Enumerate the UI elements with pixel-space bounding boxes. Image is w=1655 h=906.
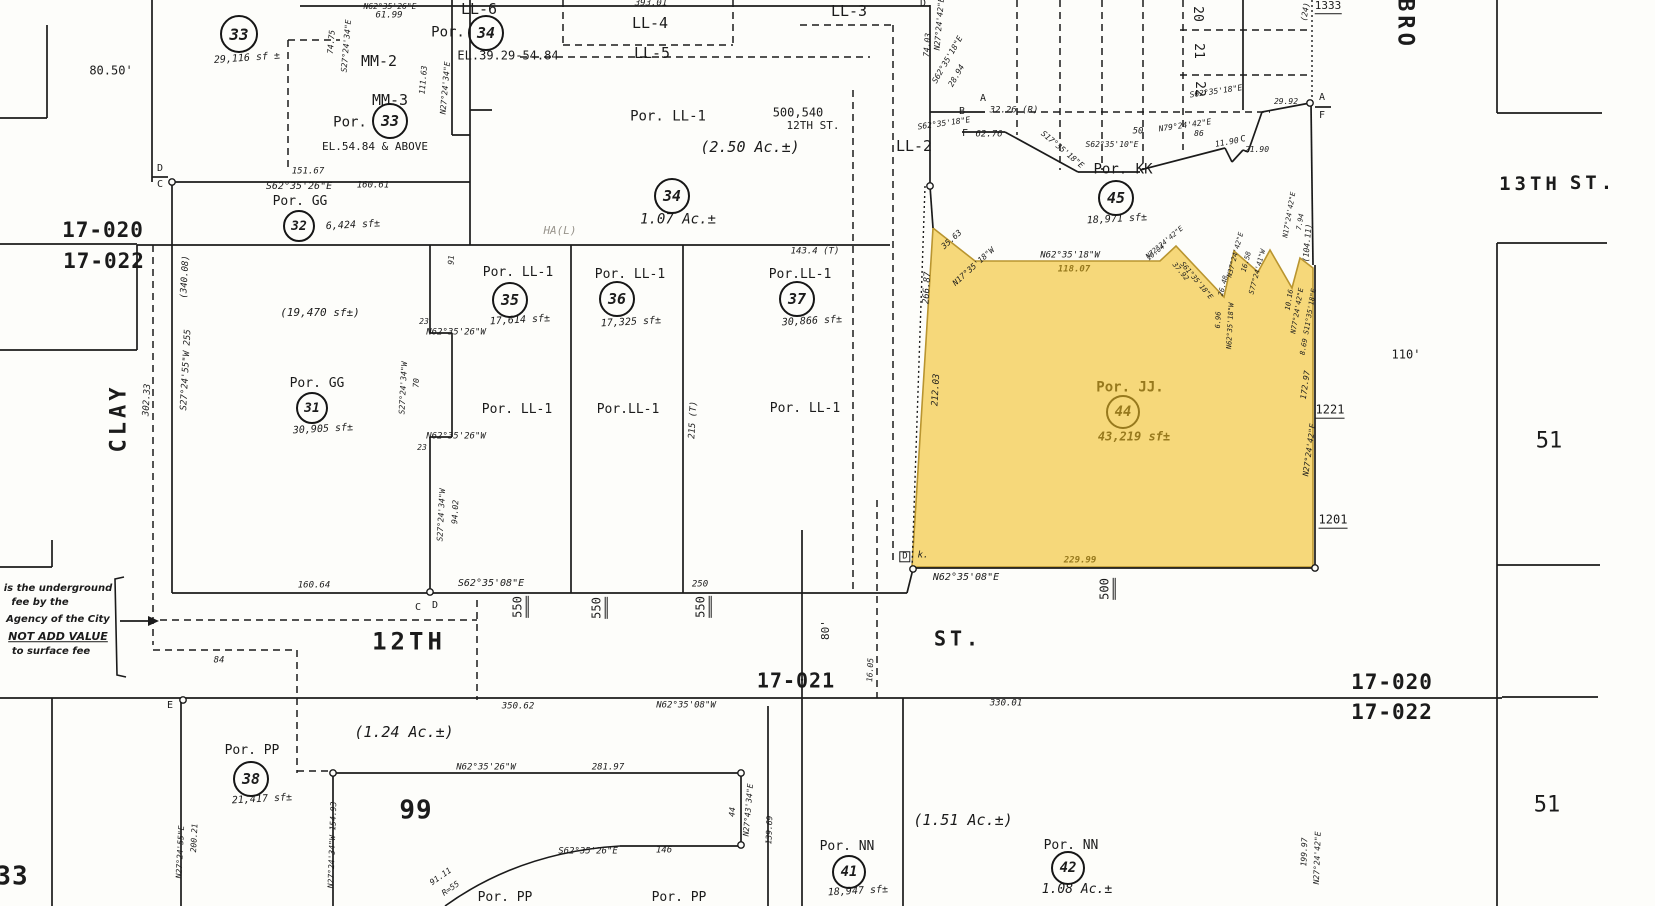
page-ref-17-020-right: 17-020	[1351, 671, 1433, 693]
map-label-1-24-ac: (1.24 Ac.±)	[354, 725, 453, 741]
map-label-50: 50	[1133, 127, 1144, 136]
parcel-number-circle-36[interactable]: 36	[599, 281, 635, 317]
zone-label-ll3: LL-3	[831, 4, 867, 20]
parcel-45-name: Por. KK	[1093, 163, 1152, 178]
map-label-s62-35-26-e: S62°35'26"E	[558, 847, 618, 856]
parcel-44-name: Por. JJ.	[1096, 381, 1163, 396]
map-label-200-21: 200.21	[190, 823, 200, 852]
address-1201: 1201	[1319, 514, 1348, 529]
survey-corner-point	[927, 183, 933, 189]
survey-corner-point	[738, 770, 744, 776]
map-label-k: k.	[918, 551, 929, 560]
parcel-number-circle-41[interactable]: 41	[832, 855, 866, 889]
page-ref-17-022-right: 17-022	[1351, 701, 1433, 723]
zone-label-mm2: MM-2	[361, 54, 397, 70]
parcel-38-name: Por. PP	[225, 744, 280, 758]
map-label-22: 22	[1192, 81, 1206, 97]
parcel-42-area: 1.08 Ac.±	[1042, 883, 1112, 897]
page-ref-17-021: 17-021	[757, 671, 835, 692]
map-label-91: 91	[448, 255, 457, 265]
parcel-number-circle-42[interactable]: 42	[1051, 851, 1085, 885]
map-label-215-t: 215 (T)	[688, 401, 699, 439]
zone-label-ll4: LL-4	[632, 16, 668, 32]
map-label-por: Por.	[431, 26, 465, 41]
map-label-c: C	[157, 180, 163, 191]
map-label-1-51-ac: (1.51 Ac.±)	[913, 813, 1012, 829]
map-label-f: F	[962, 129, 968, 140]
map-label-s62-35-26-e: S62°35'26"E	[266, 182, 332, 193]
address-550-c: 550	[695, 596, 712, 618]
parcel-34-name: Por. LL-1	[630, 110, 706, 125]
map-label-29-92: 29.92	[1274, 98, 1298, 106]
parcel-number-circle-31[interactable]: 31	[296, 392, 328, 424]
survey-corner-point	[330, 770, 336, 776]
note-line-3: Agency of the City	[6, 615, 110, 626]
map-label-23: 23	[419, 318, 429, 326]
address-1333: 1333	[1315, 0, 1342, 14]
map-label-350-62: 350.62	[502, 702, 535, 711]
survey-corner-point	[1312, 565, 1318, 571]
map-label-20: 20	[1190, 6, 1204, 22]
map-label-94-02: 94.02	[451, 500, 461, 524]
parcel-32-name: Por. GG	[273, 195, 328, 209]
map-label-143-4-t: 143.4 (T)	[791, 247, 840, 256]
map-label-6-96: 6.96	[1215, 311, 1223, 328]
parcel-number-circle-38[interactable]: 38	[233, 761, 269, 797]
map-label-110: 110'	[1392, 349, 1421, 362]
page-ref-17-020-left: 17-020	[62, 219, 144, 241]
map-label-16-05: 16.05	[866, 658, 876, 682]
boundary-line	[1232, 150, 1243, 162]
page-ref-17-022-left: 17-022	[63, 250, 145, 272]
map-label-21-90: 21.90	[1245, 146, 1269, 154]
map-label-e: E	[167, 701, 173, 712]
map-label-st: ST.	[1570, 174, 1616, 194]
map-label-139-69: 139.69	[765, 815, 774, 844]
street-label-12th: 12TH	[372, 629, 446, 654]
map-label-n62-35-08-e: N62°35'08"E	[933, 573, 999, 584]
block-51-upper: 51	[1536, 429, 1563, 452]
map-label-12th-st: 12TH ST.	[787, 120, 840, 132]
note-line-2: fee by the	[11, 598, 68, 609]
parcel-number-circle-33[interactable]: 33	[220, 15, 258, 53]
map-label-por: Por.	[333, 116, 367, 131]
map-label-s62-35-10-e: S62°35'10"E	[1086, 141, 1139, 149]
map-label-n62-35-26-w: N62°35'26"W	[426, 328, 486, 337]
map-label-por-ll-1: Por.LL-1	[597, 403, 660, 417]
map-label-n62-35-08-w: N62°35'08"W	[656, 701, 716, 710]
address-550-b: 550	[591, 597, 608, 619]
parcel-34-area: 1.07 Ac.±	[640, 213, 716, 228]
block-99: 99	[399, 797, 432, 824]
map-label-a: A	[980, 94, 986, 105]
street-label-clay: CLAY	[107, 384, 130, 453]
map-label-19-470-sf: (19,470 sf±)	[280, 307, 359, 319]
parcel-35-name: Por. LL-1	[483, 266, 553, 280]
survey-corner-point	[180, 697, 186, 703]
parcel-41-name: Por. NN	[820, 840, 875, 854]
parcel-number-circle-35[interactable]: 35	[492, 282, 528, 318]
map-label-f: F	[1319, 111, 1325, 122]
map-label-80-50: 80.50'	[89, 65, 132, 78]
parcel-37-name: Por.LL-1	[769, 268, 832, 282]
map-label-151-67: 151.67	[292, 167, 325, 176]
map-label-a: A	[1319, 93, 1325, 104]
note-line-5: to surface fee	[12, 647, 90, 658]
map-label-302-33: 302.33	[142, 384, 153, 417]
note-bracket	[115, 577, 126, 677]
map-label-118-07: 118.07	[1058, 265, 1091, 274]
map-label-d: D	[432, 601, 438, 612]
parcel-44-area: 43,219 sf±	[1098, 431, 1170, 444]
boundary-line	[930, 186, 933, 228]
map-label-c: C	[415, 603, 421, 614]
map-label-44: 44	[728, 807, 737, 817]
parcel-number-circle-45[interactable]: 45	[1098, 180, 1134, 216]
street-label-broadway: BRO	[1393, 0, 1416, 50]
map-label-c: C	[1240, 135, 1245, 144]
boundary-line	[1225, 148, 1232, 162]
parcel-number-circle-37[interactable]: 37	[779, 281, 815, 317]
map-label-por-pp: Por. PP	[478, 891, 533, 905]
block-51-lower: 51	[1534, 793, 1561, 816]
map-label-160-64: 160.64	[298, 581, 331, 590]
note-line-1: is the underground	[4, 584, 113, 595]
street-label-13th: 13TH	[1499, 175, 1561, 195]
map-label-n62-35-26-w: N62°35'26"W	[426, 432, 486, 441]
parcel-number-circle-32[interactable]: 32	[283, 210, 315, 242]
address-500-540: 500,540	[773, 107, 824, 120]
map-label-n62-35-26-w: N62°35'26"W	[456, 763, 516, 772]
map-label-61-99: 61.99	[375, 11, 402, 20]
survey-corner-point	[910, 566, 916, 572]
map-label-84: 84	[214, 656, 225, 665]
map-label-el-54-84-above: EL.54.84 & ABOVE	[322, 141, 428, 153]
parcel-number-circle-34[interactable]: 34	[468, 15, 504, 51]
map-label-por-pp: Por. PP	[652, 891, 707, 905]
map-label-23: 23	[417, 444, 427, 452]
map-label-por-ll-1: Por. LL-1	[770, 402, 840, 416]
map-label-393-01: 393.01	[635, 0, 668, 9]
map-label-70: 70	[413, 378, 422, 388]
map-label-281-97: 281.97	[592, 763, 625, 772]
survey-corner-point	[427, 589, 433, 595]
note-line-4: NOT ADD VALUE	[8, 631, 108, 643]
zone-label-ll5: LL-5	[634, 46, 670, 62]
map-label-62-76: 62.76	[975, 130, 1002, 139]
parcel-36-name: Por. LL-1	[595, 268, 665, 282]
survey-corner-point	[1307, 100, 1313, 106]
zone-label-ll2: LL-2	[896, 139, 932, 155]
map-label-d: D	[157, 164, 163, 175]
parcel-31-name: Por. GG	[290, 377, 345, 391]
map-label-21: 21	[1191, 43, 1205, 59]
parcel-number-circle-34[interactable]: 34	[654, 178, 690, 214]
address-1221: 1221	[1316, 404, 1345, 419]
map-label-d: D	[920, 0, 926, 9]
map-label-d: D	[899, 551, 910, 562]
parcel-number-circle-33[interactable]: 33	[372, 103, 408, 139]
map-label-80: 80'	[820, 620, 832, 640]
map-label-229-99: 229.99	[1064, 556, 1097, 565]
map-label-s62-35-08-e: S62°35'08"E	[458, 579, 524, 590]
map-label-86: 86	[1194, 130, 1204, 138]
map-label-160-61: 160.61	[357, 181, 390, 190]
survey-corner-point	[738, 842, 744, 848]
map-label-212-03: 212.03	[931, 374, 942, 407]
parcel-number-circle-44[interactable]: 44	[1106, 395, 1140, 429]
map-label-330-01: 330.01	[990, 699, 1023, 708]
boundary-line	[1140, 148, 1225, 170]
block-33-corner: 33	[0, 863, 29, 890]
map-label-2-50-ac: (2.50 Ac.±)	[700, 140, 799, 156]
assessor-map-canvas: 933,228 975,261 1160,261 1176,246 1224,2…	[0, 0, 1655, 906]
survey-corner-point	[169, 179, 175, 185]
map-label-el-39-29-54-84: EL.39.29-54.84	[457, 50, 558, 63]
map-label-199-97: 199.97	[1300, 837, 1309, 866]
street-label-12th-st: ST.	[934, 629, 982, 650]
address-500: 500	[1099, 578, 1116, 600]
map-label-250: 250	[692, 580, 708, 589]
map-label-32-26-r: 32.26 (R)	[990, 106, 1039, 115]
map-label-266-87: 266.87	[922, 272, 933, 305]
address-550-a: 550	[512, 596, 529, 618]
map-label-146: 146	[656, 846, 672, 855]
map-label-ha-l: HA(L)	[543, 225, 576, 237]
map-label-por-ll-1: Por. LL-1	[482, 403, 552, 417]
map-label-n62-35-18-w: N62°35'18"W	[1040, 251, 1100, 260]
